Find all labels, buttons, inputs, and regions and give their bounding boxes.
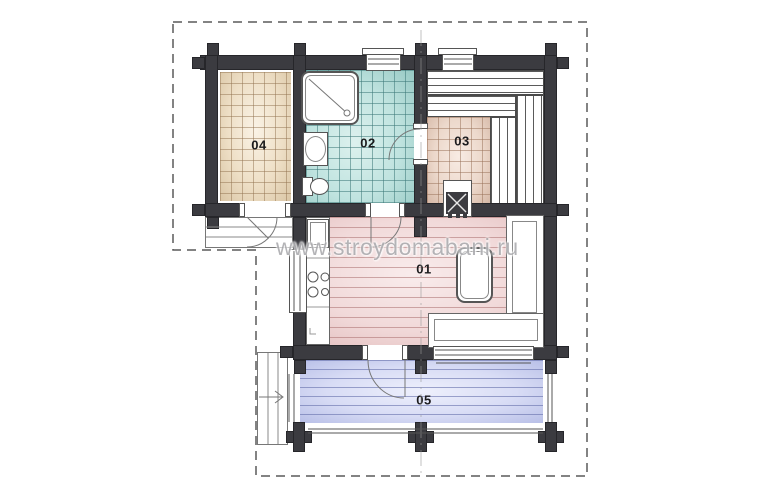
sauna-bench-top-lower: [427, 95, 516, 117]
door-room04-jamb: [239, 203, 245, 217]
log-end: [207, 217, 219, 229]
terrace-post-top-left: [294, 360, 306, 374]
shower-cabin-inner: [305, 75, 355, 121]
room-01-label: 01: [416, 262, 431, 277]
log-end: [192, 204, 205, 216]
toilet-bowl: [310, 178, 329, 195]
sauna-stove: [446, 192, 468, 214]
log-end: [207, 43, 219, 56]
log-end: [280, 346, 293, 358]
log-end: [415, 43, 427, 56]
room-05-label: 05: [416, 393, 431, 408]
log-end: [192, 57, 205, 69]
wall-bottom-left: [293, 345, 367, 360]
window-room01-bottom: [433, 346, 534, 360]
room-03-label: 03: [454, 134, 469, 149]
sauna-bench-right-upper: [516, 95, 544, 205]
wall-mid-left: [205, 203, 242, 217]
sauna-bench-right-lower: [490, 117, 516, 205]
watermark-text: www.stroydomabani.ru: [276, 234, 519, 261]
room-04-label: 04: [251, 138, 266, 153]
wall-mid-center: [287, 203, 368, 217]
terrace-stairs: [257, 352, 288, 445]
door-02-01-jamb: [365, 203, 371, 217]
terrace-post-bottom-left: [293, 422, 305, 452]
log-end: [557, 204, 569, 216]
sauna-bench-top-upper: [427, 70, 544, 95]
terrace-post-top-middle: [415, 360, 427, 374]
room-02-label: 02: [360, 136, 375, 151]
door-room04-jamb: [285, 203, 291, 217]
door-02-03-jamb: [413, 123, 428, 129]
washbasin-bowl: [305, 136, 326, 162]
floor-plan: 01 02 03 04 05 www.stroydomabani.ru: [0, 0, 760, 500]
wall-left-room04: [205, 55, 218, 217]
room-04-floor-tiles: [220, 72, 291, 201]
wall-divider-02-03-upper: [414, 55, 427, 127]
door-01-05-jamb: [402, 345, 408, 360]
window-room03: [442, 54, 474, 71]
terrace-post-top-right: [545, 360, 557, 374]
log-end: [294, 43, 306, 56]
terrace-post-bottom-right: [545, 422, 557, 452]
log-end: [557, 57, 569, 69]
terrace-post-bottom-middle: [415, 422, 427, 452]
door-02-01-jamb: [399, 203, 405, 217]
window-room02: [366, 54, 401, 71]
sofa-bottom-cushions: [434, 319, 538, 341]
door-02-03-jamb: [413, 159, 428, 165]
door-01-05-jamb: [362, 345, 368, 360]
log-end: [545, 43, 557, 56]
log-end: [557, 346, 569, 358]
